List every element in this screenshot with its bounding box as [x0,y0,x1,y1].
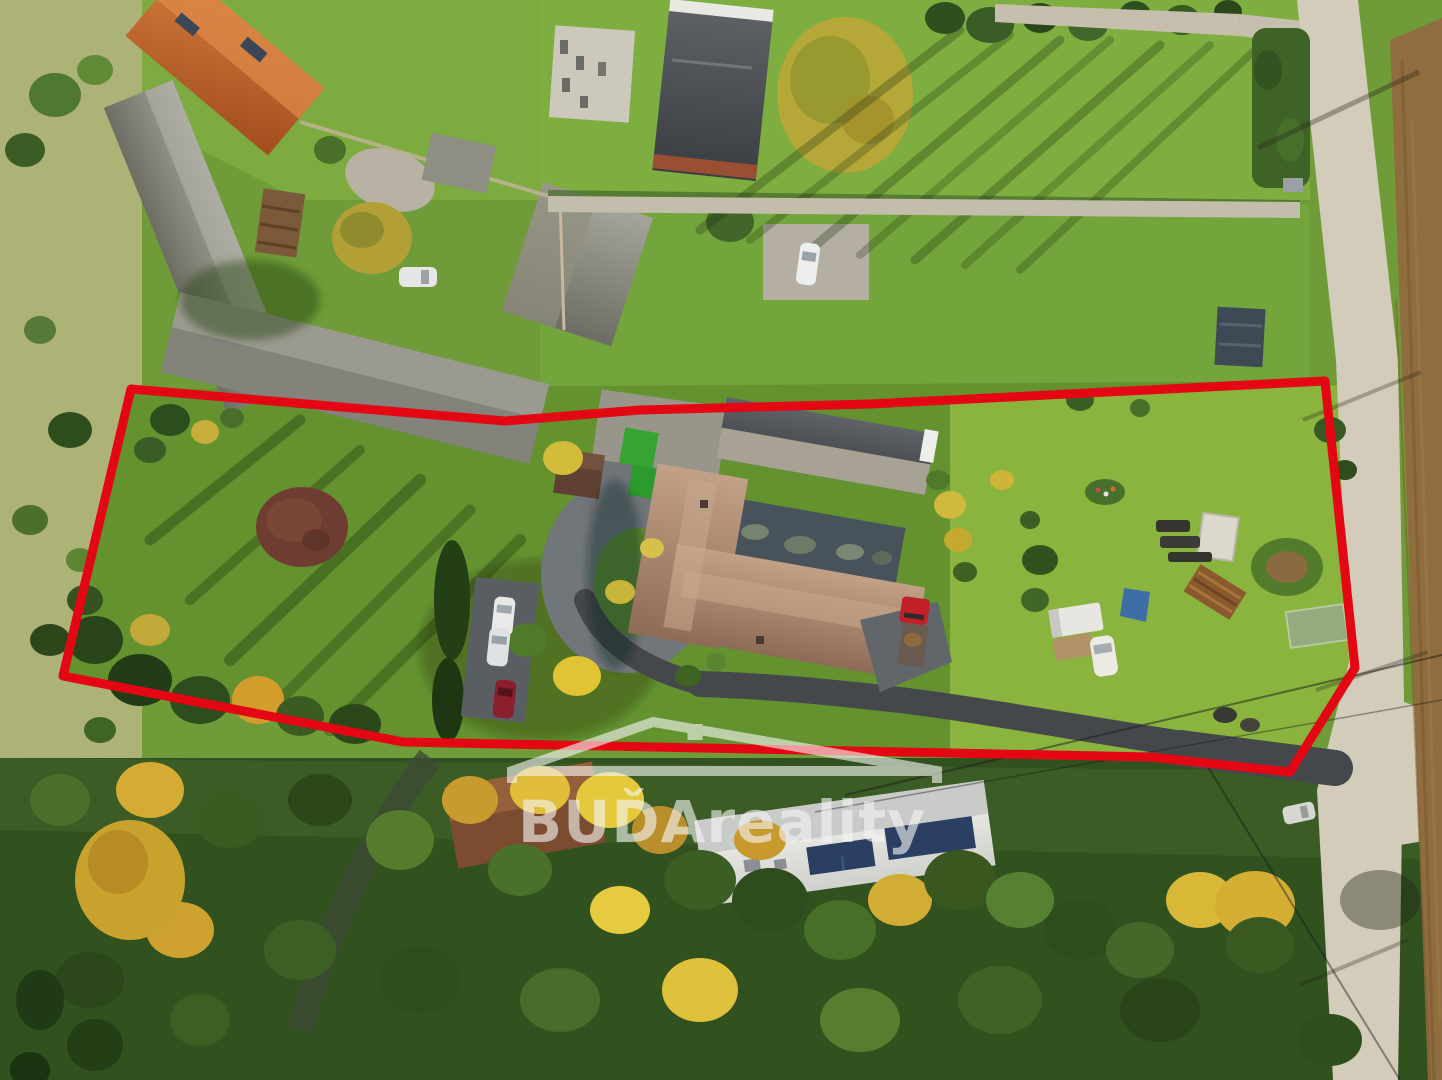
dark-roof-house [652,0,773,181]
chimney [700,500,708,508]
road-hedge [1252,28,1310,188]
cemetery-plot [549,25,635,122]
white-car [486,627,511,667]
aerial-photo: BUĎAreality [0,0,1442,1080]
yard-shadow [180,260,320,340]
blue-shed [1215,307,1266,367]
green-turf [619,427,659,468]
watermark-text: BUĎAreality [518,787,926,856]
tall-hedge [434,540,470,660]
red-car [492,679,517,719]
chimney [756,636,764,644]
greenhouse-frame [1286,604,1348,648]
trailer [1283,178,1303,192]
blue-tarp [1120,588,1150,622]
white-car [399,267,437,287]
yellow-tree [553,656,601,696]
